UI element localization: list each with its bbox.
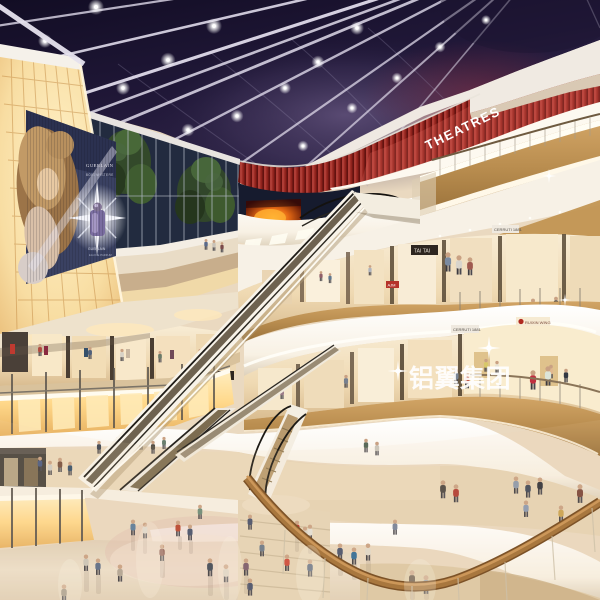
svg-text:RUIXIN WING: RUIXIN WING — [525, 320, 551, 325]
svg-text:CERRUTI 1881: CERRUTI 1881 — [453, 327, 482, 332]
svg-text:AJM: AJM — [388, 283, 396, 288]
svg-text:铝翼集团: 铝翼集团 — [409, 364, 511, 393]
svg-text:TAI TAI: TAI TAI — [414, 249, 430, 255]
svg-text:CERRUTI 1881: CERRUTI 1881 — [494, 227, 523, 232]
